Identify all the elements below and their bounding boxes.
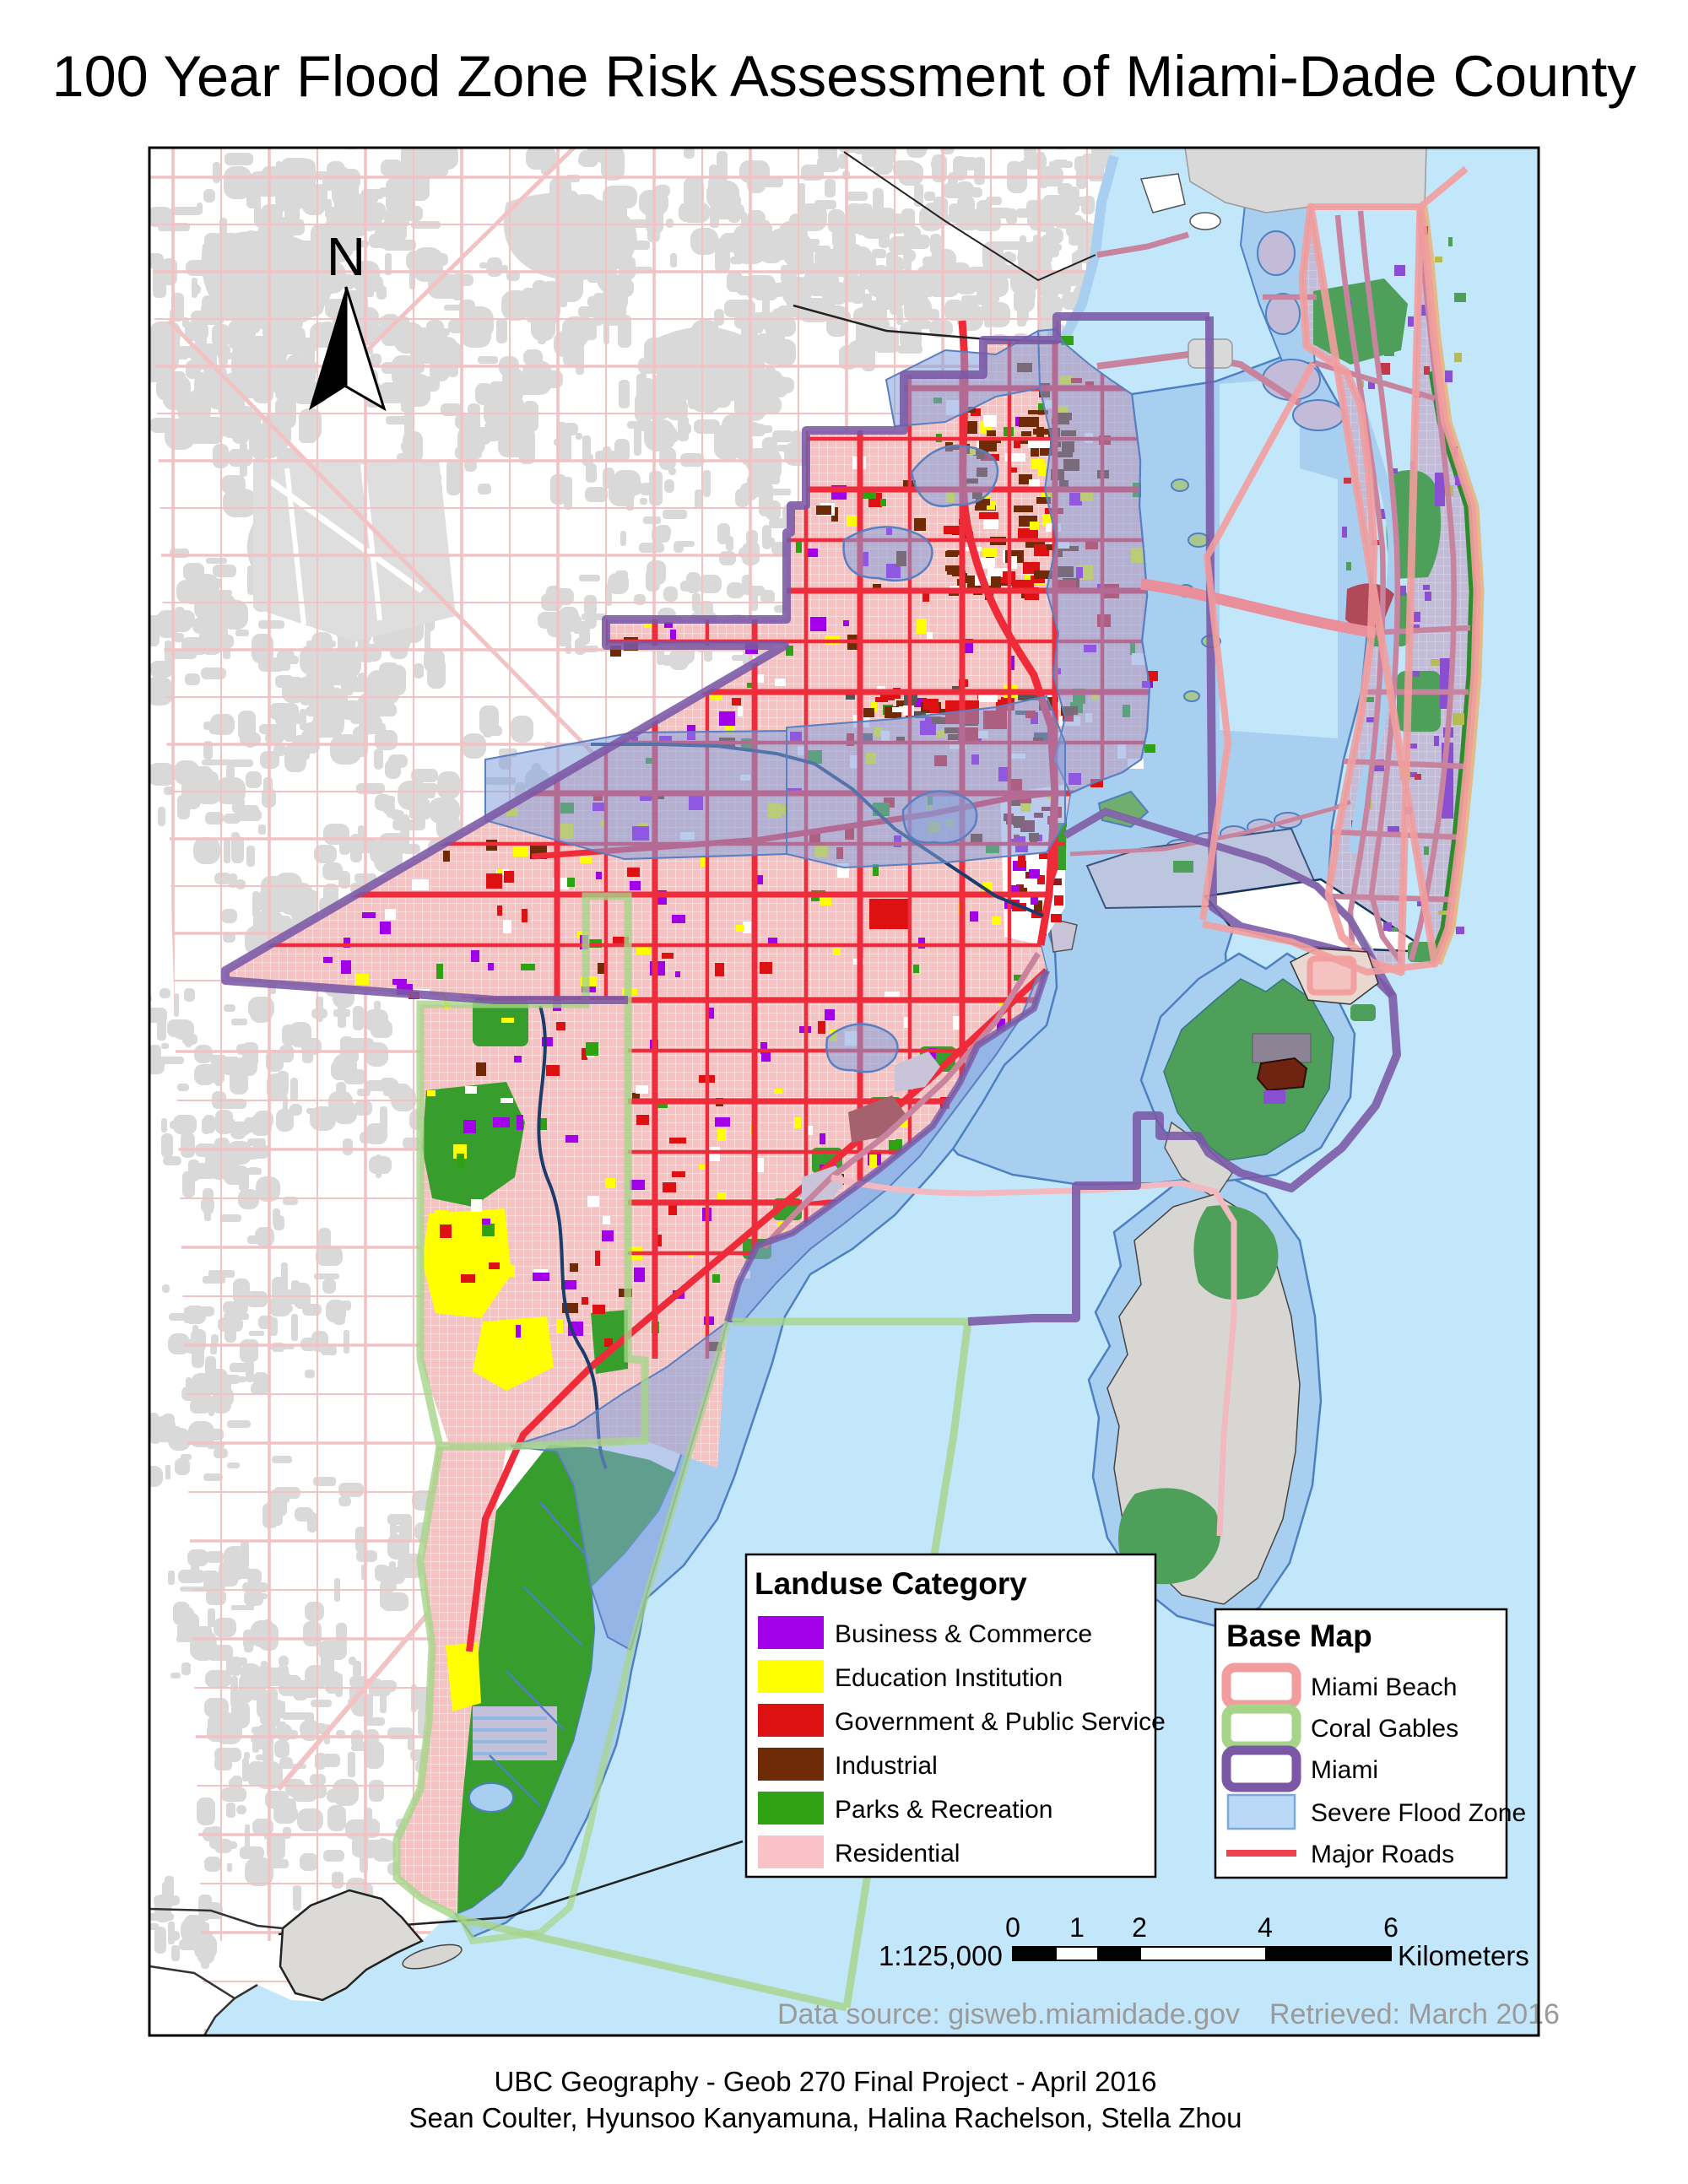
svg-text:1:125,000: 1:125,000: [879, 1940, 1003, 1971]
svg-text:Parks & Recreation: Parks & Recreation: [835, 1796, 1052, 1824]
svg-text:Base Map: Base Map: [1226, 1619, 1372, 1653]
svg-text:1: 1: [1069, 1912, 1085, 1943]
svg-text:Miami: Miami: [1311, 1756, 1378, 1784]
svg-text:Miami Beach: Miami Beach: [1311, 1673, 1457, 1701]
svg-text:Landuse Category: Landuse Category: [755, 1566, 1027, 1601]
svg-text:Major Roads: Major Roads: [1311, 1841, 1454, 1868]
svg-text:4: 4: [1258, 1912, 1273, 1943]
svg-text:Severe Flood Zone: Severe Flood Zone: [1311, 1799, 1526, 1827]
svg-text:0: 0: [1005, 1912, 1020, 1943]
svg-text:N: N: [327, 226, 365, 287]
svg-text:Kilometers: Kilometers: [1398, 1940, 1529, 1971]
svg-text:2: 2: [1132, 1912, 1147, 1943]
svg-text:6: 6: [1383, 1912, 1399, 1943]
svg-text:Retrieved: March 2016: Retrieved: March 2016: [1269, 1998, 1560, 2030]
svg-text:Data source: gisweb.miamidade.: Data source: gisweb.miamidade.gov: [777, 1998, 1240, 2030]
svg-text:Business & Commerce: Business & Commerce: [835, 1620, 1092, 1648]
svg-text:Industrial: Industrial: [835, 1752, 938, 1780]
svg-text:Government & Public Service: Government & Public Service: [835, 1708, 1166, 1736]
svg-text:Coral Gables: Coral Gables: [1311, 1715, 1458, 1743]
svg-text:Education Institution: Education Institution: [835, 1664, 1063, 1692]
svg-text:Residential: Residential: [835, 1840, 960, 1868]
